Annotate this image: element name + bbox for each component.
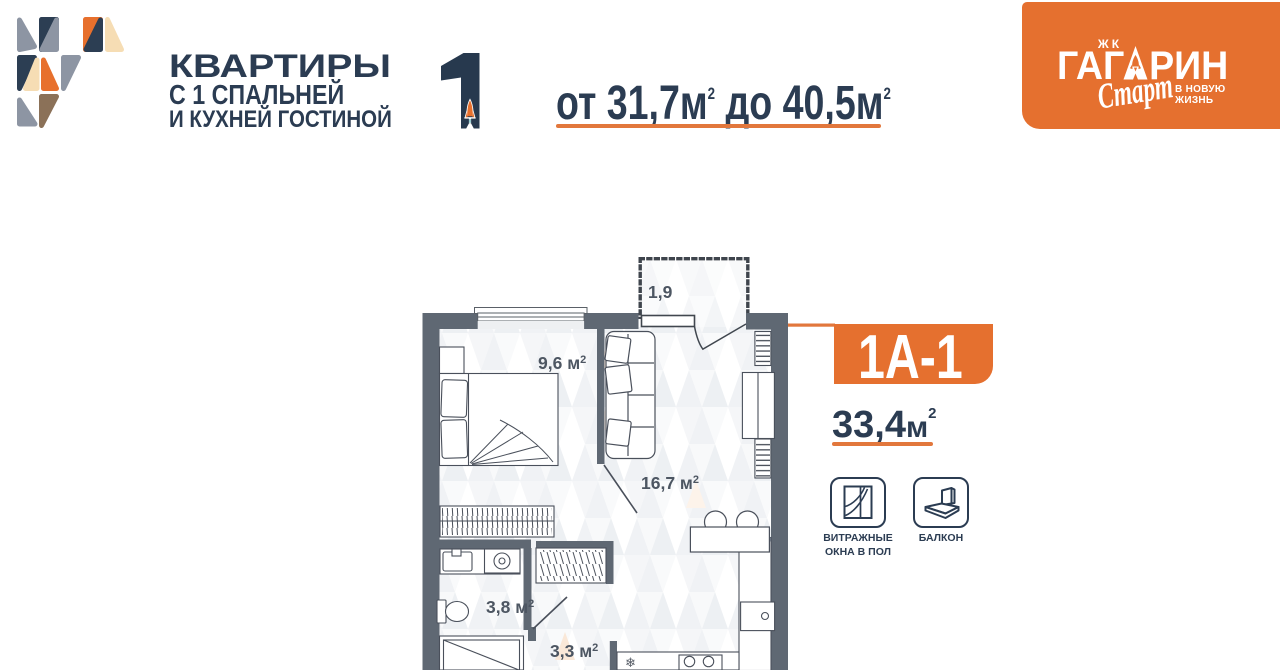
svg-text:3,8 м2: 3,8 м2 [486,597,534,617]
svg-text:❄: ❄ [625,655,636,670]
svg-text:9,6 м2: 9,6 м2 [538,353,586,373]
svg-text:16,7 м2: 16,7 м2 [641,473,699,493]
svg-text:1,9: 1,9 [648,282,673,302]
svg-text:3,3 м2: 3,3 м2 [550,641,598,661]
